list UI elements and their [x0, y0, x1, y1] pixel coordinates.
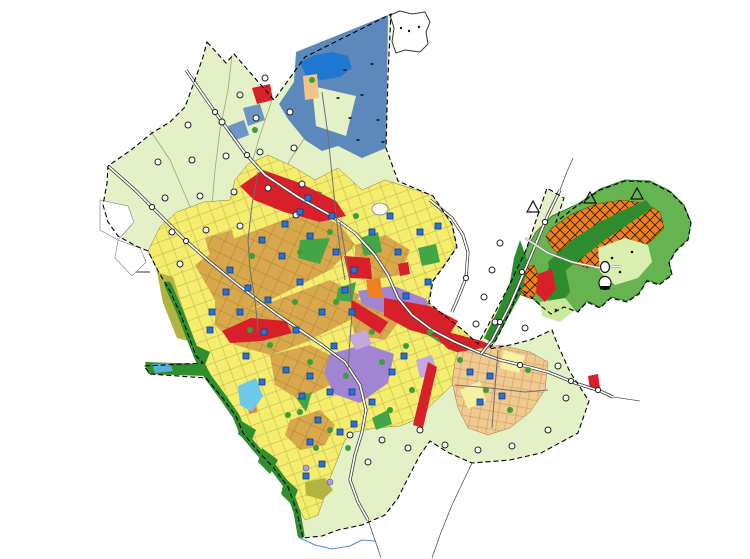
- orchard-circle-symbol: [405, 445, 411, 451]
- green-space-dot: [307, 359, 313, 365]
- orchard-circle-symbol: [475, 447, 481, 453]
- facility-square-symbol: [261, 329, 267, 335]
- green-space-dot: [327, 229, 333, 235]
- facility-square-symbol: [319, 461, 325, 467]
- road-marker: [183, 238, 188, 243]
- excluded-enclave: [390, 11, 430, 53]
- green-space-dot: [309, 77, 315, 83]
- facility-square-symbol: [282, 221, 288, 227]
- facility-square-symbol: [299, 393, 305, 399]
- orchard-circle-symbol: [473, 321, 479, 327]
- purple-site-dot: [303, 465, 309, 471]
- facility-square-symbol: [207, 327, 213, 333]
- orchard-circle-symbol: [365, 459, 371, 465]
- master-plan-page: [0, 0, 750, 559]
- road-marker: [149, 204, 154, 209]
- green-space-dot: [403, 343, 409, 349]
- road-marker: [463, 275, 468, 280]
- facility-square-symbol: [293, 327, 299, 333]
- orchard-circle-symbol: [262, 75, 268, 81]
- facility-square-symbol: [307, 439, 313, 445]
- forest-triangle-symbol: [527, 201, 539, 212]
- orchard-circle-symbol: [237, 92, 243, 98]
- north-zone-tick: [371, 63, 374, 65]
- orchard-circle-symbol: [522, 325, 528, 331]
- road-marker: [542, 219, 547, 224]
- facility-square-symbol: [369, 229, 375, 235]
- facility-square-symbol: [487, 373, 493, 379]
- green-space-dot: [353, 213, 359, 219]
- facility-square-symbol: [389, 369, 395, 375]
- road-marker: [497, 319, 502, 324]
- green-space-dot: [333, 299, 339, 305]
- green-patch-2: [418, 244, 440, 266]
- green-space-dot: [249, 253, 255, 259]
- green-space-dot: [297, 249, 303, 255]
- north-zone-tick: [344, 69, 347, 71]
- facility-square-symbol: [477, 399, 483, 405]
- north-zone-tick: [349, 117, 352, 119]
- facility-square-symbol: [337, 429, 343, 435]
- green-space-dot: [387, 407, 393, 413]
- enclave-dot: [418, 26, 420, 28]
- north-zone-tick: [382, 141, 385, 143]
- road-marker: [244, 152, 249, 157]
- facility-square-symbol: [401, 353, 407, 359]
- orchard-circle-symbol: [287, 109, 293, 115]
- facility-square-symbol: [349, 309, 355, 315]
- facility-square-symbol: [307, 233, 313, 239]
- facility-square-symbol: [417, 229, 423, 235]
- south-stream: [300, 538, 375, 549]
- green-space-dot: [507, 407, 513, 413]
- facility-square-symbol: [237, 309, 243, 315]
- facility-square-symbol: [279, 253, 285, 259]
- orchard-circle-symbol: [231, 189, 237, 195]
- green-space-dot: [379, 359, 385, 365]
- north-zone-tick: [377, 119, 380, 121]
- road-marker: [568, 378, 573, 383]
- south-exit-road: [368, 520, 381, 558]
- orchard-circle-symbol: [299, 181, 305, 187]
- orchard-circle-symbol: [555, 363, 561, 369]
- facility-square-symbol: [351, 267, 357, 273]
- orchard-circle-symbol: [347, 432, 353, 438]
- orchard-circle-symbol: [223, 153, 229, 159]
- zoning-map: [0, 0, 750, 559]
- facility-square-symbol: [259, 237, 265, 243]
- facility-square-symbol: [283, 367, 289, 373]
- facility-square-symbol: [467, 369, 473, 375]
- green-space-dot: [369, 329, 375, 335]
- green-space-dot: [343, 373, 349, 379]
- facility-square-symbol: [305, 195, 311, 201]
- facility-square-symbol: [307, 373, 313, 379]
- facility-square-symbol: [319, 309, 325, 315]
- facility-square-symbol: [395, 249, 401, 255]
- facility-square-symbol: [349, 389, 355, 395]
- green-space-dot: [285, 412, 291, 418]
- purple-site-dot: [327, 479, 333, 485]
- facility-square-symbol: [331, 343, 337, 349]
- facility-square-symbol: [387, 213, 393, 219]
- facility-square-symbol: [499, 393, 505, 399]
- orchard-circle-symbol: [291, 145, 297, 151]
- east-exit-road: [613, 397, 640, 401]
- facility-square-symbol: [303, 473, 309, 479]
- facility-square-symbol: [425, 279, 431, 285]
- orchard-circle-symbol: [197, 193, 203, 199]
- facility-square-symbol: [245, 285, 251, 291]
- facility-square-symbol: [243, 353, 249, 359]
- green-space-dot: [525, 367, 531, 373]
- facility-square-symbol: [315, 417, 321, 423]
- facility-square-symbol: [333, 249, 339, 255]
- green-space-dot: [292, 299, 298, 305]
- green-space-dot: [327, 427, 333, 433]
- green-space-dot: [457, 357, 463, 363]
- water-tower-icon: [601, 262, 610, 273]
- orchard-circle-symbol: [219, 119, 225, 125]
- north-zone-tick: [357, 139, 360, 141]
- red-dot-center-small: [398, 262, 410, 276]
- road-marker: [517, 362, 522, 367]
- orchard-circle-symbol: [417, 427, 423, 433]
- green-space-dot: [252, 127, 258, 133]
- orchard-circle-symbol: [189, 157, 195, 163]
- orchard-circle-symbol: [253, 115, 259, 121]
- green-space-dot: [483, 387, 489, 393]
- enclave-dot: [400, 27, 402, 29]
- orchard-circle-symbol: [563, 395, 569, 401]
- facility-square-symbol: [351, 421, 357, 427]
- orchard-circle-symbol: [237, 223, 243, 229]
- strip-road-continuation: [560, 158, 573, 190]
- se-exit-road: [432, 463, 472, 558]
- road-marker: [595, 387, 600, 392]
- orchard-circle-symbol: [545, 427, 551, 433]
- orchard-circle-symbol: [155, 159, 161, 165]
- green-space-dot: [409, 387, 415, 393]
- orchard-circle-symbol: [162, 195, 168, 201]
- north-zone-tick: [361, 94, 364, 96]
- facility-square-symbol: [297, 209, 303, 215]
- road-marker: [519, 269, 524, 274]
- facility-square-symbol: [342, 287, 348, 293]
- orchard-circle-symbol: [169, 229, 175, 235]
- orchard-circle-symbol: [509, 443, 515, 449]
- orchard-circle-symbol: [185, 122, 191, 128]
- enclave-dot: [408, 30, 410, 32]
- orchard-circle-symbol: [265, 185, 271, 191]
- green-space-dot: [427, 329, 433, 335]
- orchard-circle-symbol: [489, 267, 495, 273]
- facility-square-symbol: [259, 379, 265, 385]
- strip-dark-green-band: [484, 240, 528, 344]
- orchard-circle-symbol: [257, 149, 263, 155]
- patch-dot: [611, 257, 614, 260]
- facility-square-symbol: [327, 389, 333, 395]
- orchard-circle-symbol: [203, 227, 209, 233]
- facility-square-symbol: [209, 309, 215, 315]
- facility-square-symbol: [369, 399, 375, 405]
- green-space-dot: [313, 445, 319, 451]
- north-zone-tick: [337, 97, 340, 99]
- green-space-dot: [297, 409, 303, 415]
- green-space-dot: [267, 342, 273, 348]
- green-space-dot: [345, 445, 351, 451]
- stadium-oval: [372, 203, 388, 215]
- patch-dot: [631, 251, 634, 254]
- road-marker: [212, 109, 217, 114]
- water-tower-icon: [600, 286, 610, 290]
- facility-square-symbol: [435, 223, 441, 229]
- facility-square-symbol: [329, 213, 335, 219]
- orange-block-center: [366, 278, 383, 298]
- orchard-circle-symbol: [177, 261, 183, 267]
- facility-square-symbol: [227, 267, 233, 273]
- facility-square-symbol: [223, 289, 229, 295]
- facility-square-symbol: [297, 279, 303, 285]
- orchard-circle-symbol: [379, 437, 385, 443]
- facility-square-symbol: [265, 297, 271, 303]
- orchard-circle-symbol: [481, 294, 487, 300]
- orchard-circle-symbol: [442, 442, 448, 448]
- green-space-dot: [247, 327, 253, 333]
- patch-dot: [619, 271, 622, 274]
- facility-square-symbol: [403, 293, 409, 299]
- orchard-circle-symbol: [497, 240, 503, 246]
